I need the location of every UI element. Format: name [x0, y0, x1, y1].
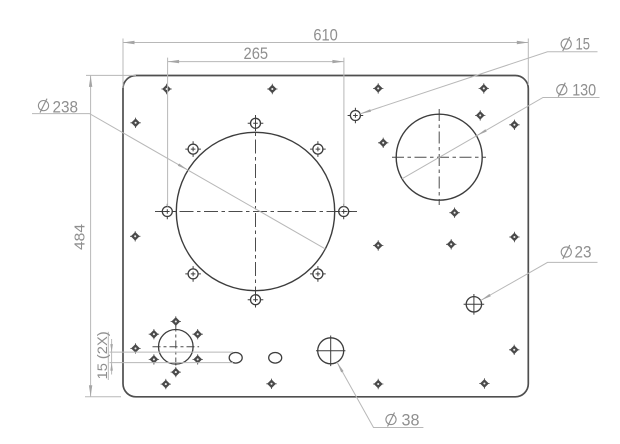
svg-text:23: 23 [575, 243, 592, 262]
svg-text:610: 610 [313, 26, 338, 44]
svg-text:484: 484 [71, 224, 88, 250]
svg-text:238: 238 [53, 97, 79, 116]
svg-text:15: 15 [576, 34, 591, 53]
svg-text:15 (2X): 15 (2X) [94, 331, 110, 379]
svg-text:38: 38 [402, 411, 420, 430]
svg-text:130: 130 [572, 81, 596, 100]
svg-text:265: 265 [244, 45, 269, 63]
